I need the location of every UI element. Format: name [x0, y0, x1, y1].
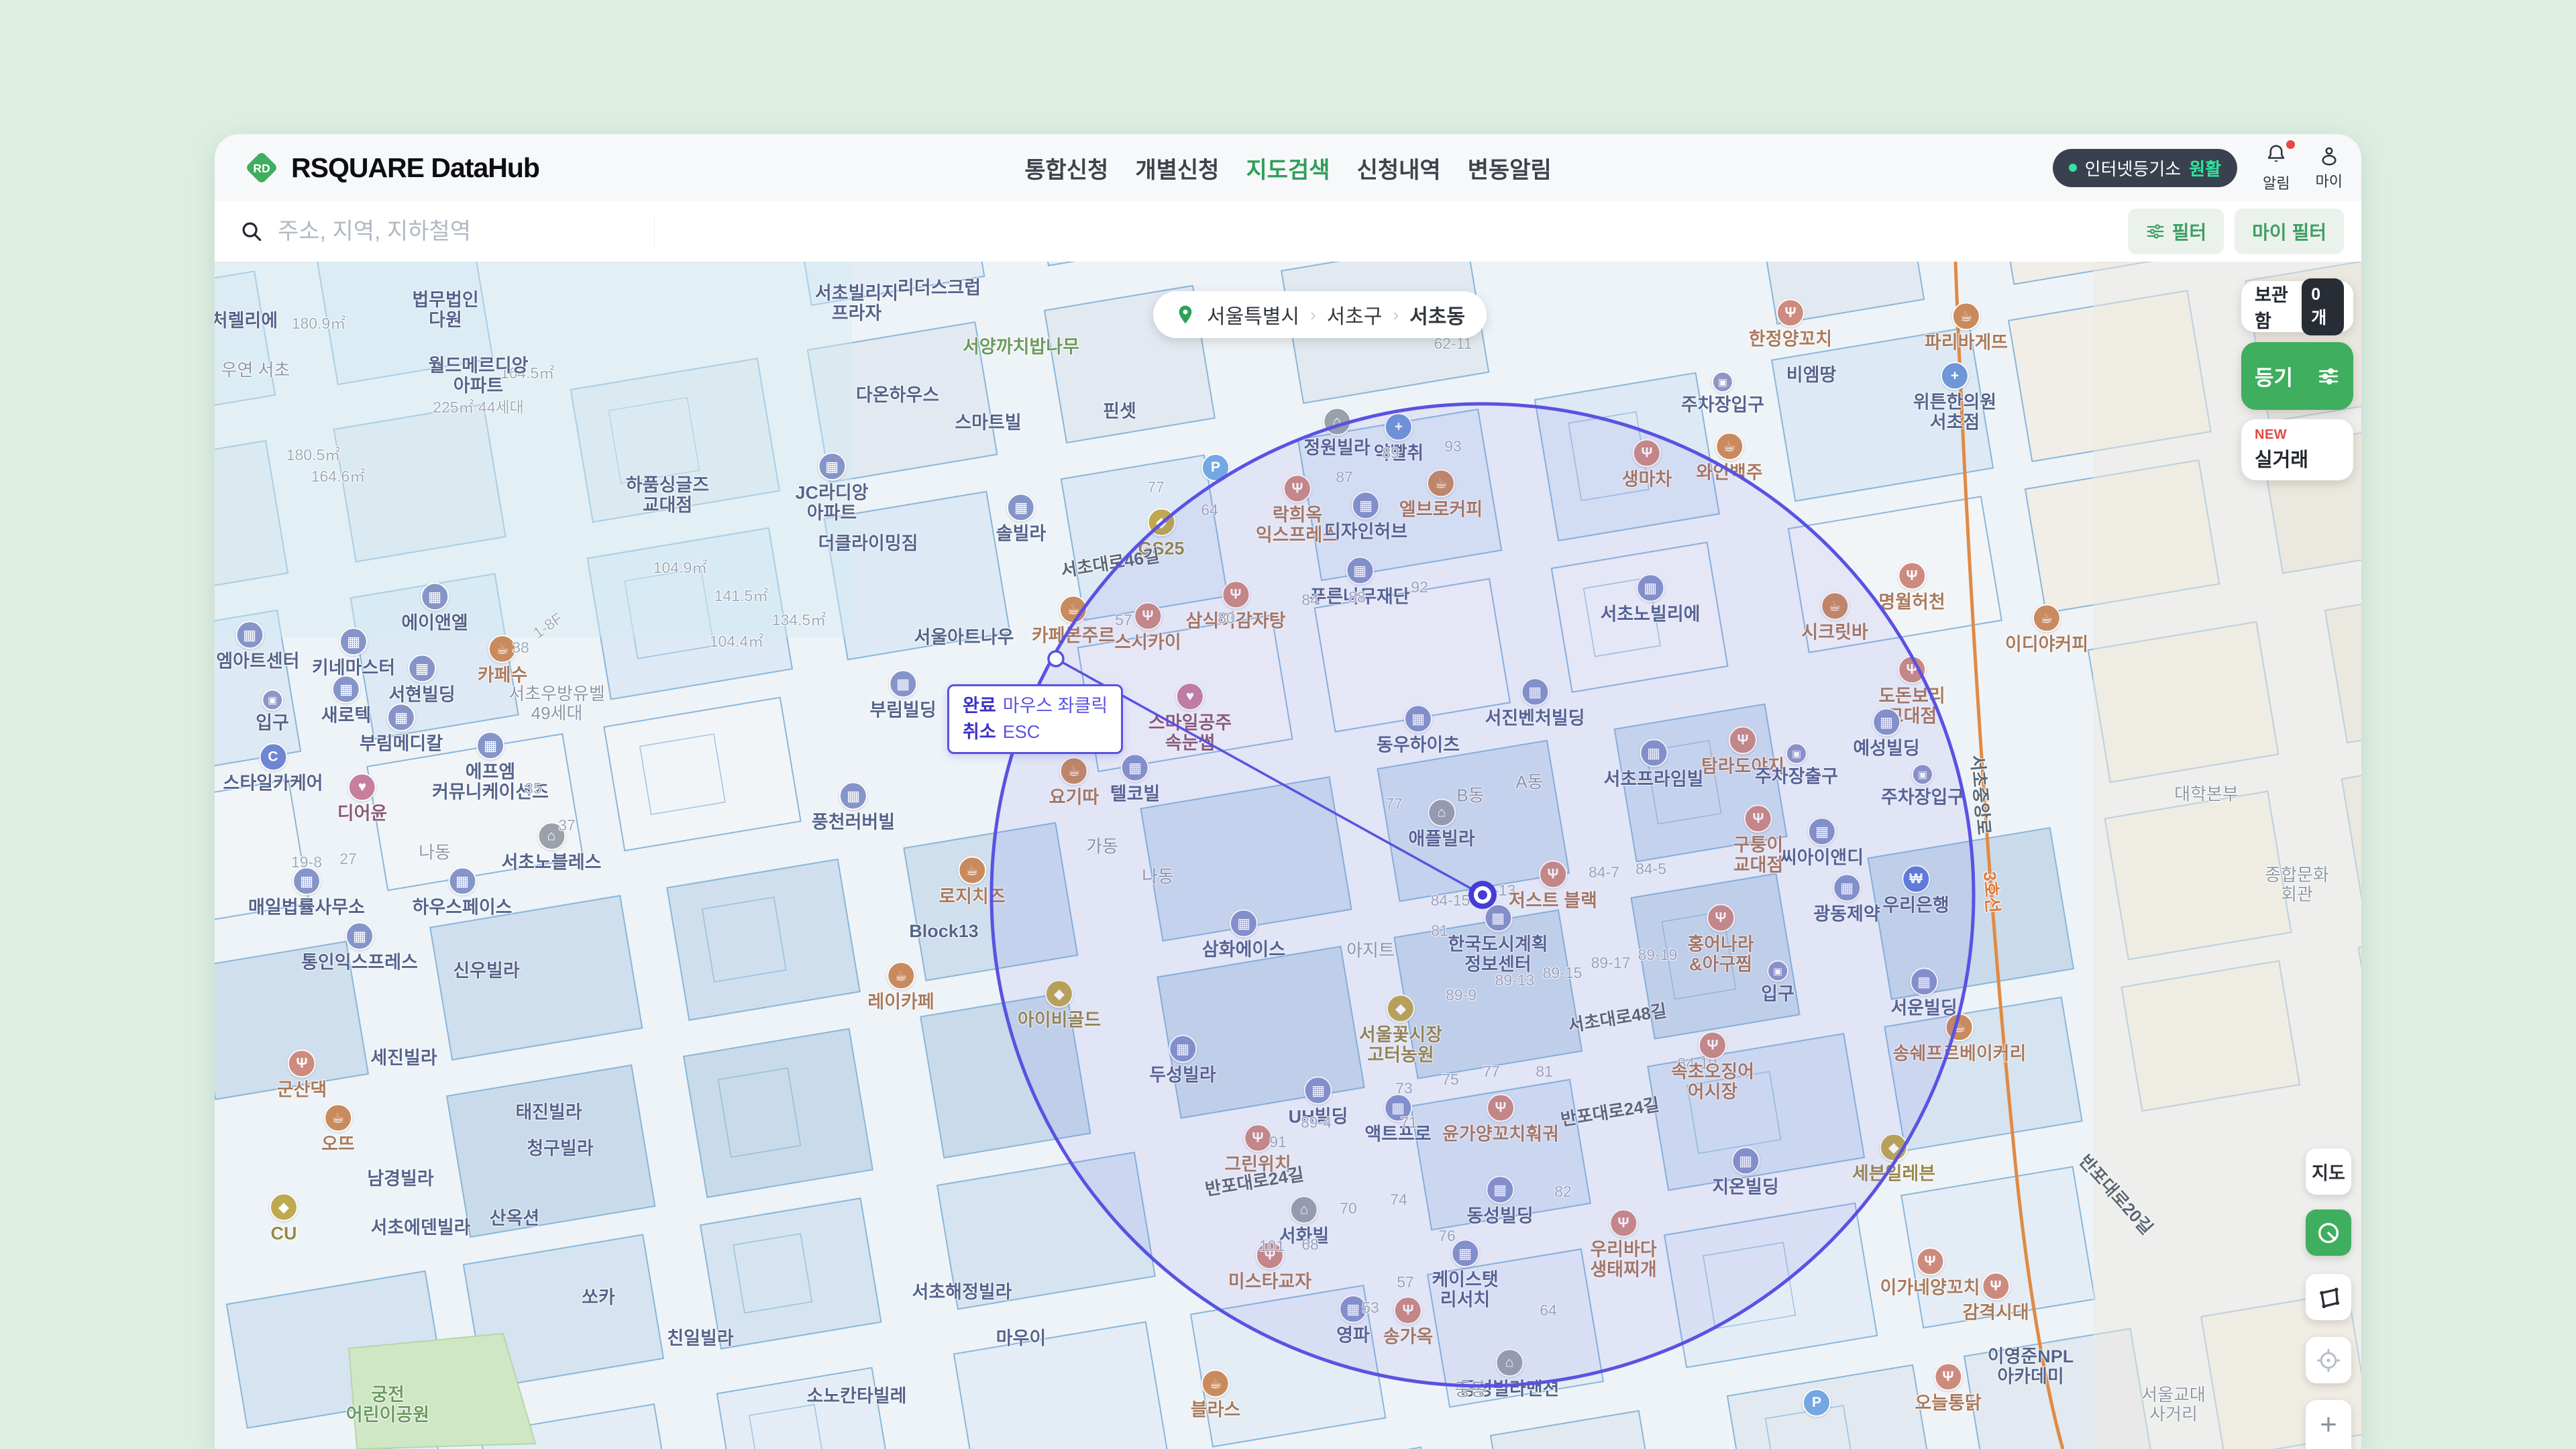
entrance-icon: ▣ [1767, 960, 1788, 981]
map-label: 84-15 [1431, 892, 1470, 910]
map-label-text: 부림메디칼 [360, 733, 443, 753]
map-label-text: 미스타교자 [1228, 1271, 1311, 1291]
map-label: ◆서울꽃시장 고터농원 [1359, 994, 1442, 1065]
map-label: 쏘카 [582, 1287, 615, 1307]
map-label: ◆CU [270, 1193, 298, 1243]
map-label-text: 동성빌딩 [1466, 1205, 1533, 1226]
map-label: 73 [1395, 1080, 1413, 1097]
profile-button[interactable]: 마이 [2316, 144, 2343, 191]
map-label: ▦삼화에이스 [1202, 909, 1285, 959]
map-label-text: 77 [1483, 1063, 1500, 1081]
building-icon: ▦ [1384, 1093, 1412, 1122]
map-label: ₩우리은행 [1882, 865, 1949, 915]
map-label: P [1201, 453, 1230, 482]
radius-circle-icon [2315, 1220, 2342, 1246]
map-label-text: 마우이 [996, 1328, 1046, 1348]
map-label: Ψ생마차 [1622, 439, 1672, 489]
map-label-text: 89-15 [1543, 965, 1582, 982]
map-label-text: 가동 [1086, 837, 1118, 856]
map-label-text: 나동 [1142, 867, 1174, 886]
map-label-text: 서초에덴빌라 [370, 1218, 470, 1238]
map-label-text: 키네마스터 [312, 657, 395, 678]
restaurant-icon: Ψ [1707, 904, 1735, 932]
building-icon: ▦ [1451, 1239, 1479, 1267]
map-label: 57 [1397, 1274, 1414, 1291]
sliders-icon [2317, 365, 2340, 388]
map-label: 88 [1348, 589, 1366, 606]
map-label-text: 서운빌딩 [1890, 998, 1957, 1018]
map-label: ▦UH빌딩 [1289, 1076, 1348, 1126]
house-icon: ⌂ [1323, 407, 1351, 435]
map-label: 다온하우스 [856, 385, 939, 405]
map-label: 청구빌라 [527, 1138, 593, 1159]
building-icon: ▦ [1346, 556, 1374, 584]
tooltip-complete-label: 완료 [963, 696, 996, 716]
parking-icon: P [1201, 453, 1230, 482]
cafe-icon: ☕ [324, 1104, 352, 1132]
map-label: 141.5㎡ [714, 588, 769, 605]
house-icon: ⌂ [1290, 1195, 1318, 1224]
map-label-text: 씨아이앤디 [1780, 847, 1864, 867]
map-label: 89-9 [1446, 987, 1477, 1004]
building-icon: ▦ [408, 654, 436, 682]
map-label: 84-5 [1635, 861, 1666, 878]
map-label: 101 [1259, 1238, 1285, 1255]
map-label-text: 입구 [256, 712, 289, 733]
map-label-text: 로지치즈 [938, 886, 1005, 906]
registry-label: 등기 [2255, 361, 2293, 391]
map-label: ☕카페본주르 [1032, 595, 1115, 645]
map-label-text: 70 [1340, 1200, 1357, 1218]
location-pin-icon [1175, 304, 1196, 325]
restaurant-icon: Ψ [1539, 860, 1567, 888]
polygon-draw-tool-button[interactable] [2306, 1274, 2351, 1320]
beauty-icon: ♥ [1176, 682, 1204, 710]
map-label: ◆세븐일레븐 [1852, 1133, 1935, 1183]
tooltip-cancel-label: 취소 [963, 722, 996, 742]
map-label-text: 180.9㎡ [292, 315, 346, 333]
map-label: 남경빌라 [367, 1169, 433, 1189]
restaurant-icon: Ψ [1916, 1247, 1944, 1275]
map-label-text: 소노칸타빌레 [806, 1386, 906, 1406]
map-label: 서초에덴빌라 [370, 1218, 470, 1238]
map-label: 57 [1115, 612, 1132, 629]
map-label-text: JC라디앙 아파트 [795, 482, 868, 523]
map-label-text: 84-5 [1635, 861, 1666, 878]
map-label-text: 스마트빌 [955, 413, 1021, 433]
map-label-text: 57 [1115, 612, 1132, 629]
map-label: Ψ저스트 블랙 [1509, 860, 1597, 910]
entrance-icon: ▣ [262, 689, 283, 710]
map-label-text: 중동 [1454, 1380, 1487, 1399]
building-icon: ▦ [1833, 873, 1861, 902]
map-label: ▦영파 [1336, 1295, 1370, 1345]
restaurant-icon: Ψ [1898, 561, 1926, 590]
nav-item-개별신청[interactable]: 개별신청 [1134, 145, 1220, 191]
map-label: ▦동성빌딩 [1466, 1175, 1533, 1226]
map-label-text: 더클라이밍짐 [818, 533, 918, 553]
pharmacy-icon: + [1385, 413, 1413, 441]
map-label: ▦서진벤처빌딩 [1485, 678, 1585, 728]
profile-label: 마이 [2316, 170, 2343, 191]
breadcrumb-item[interactable]: 서초구 [1327, 300, 1383, 329]
map-label-text: 탐라도야지 [1701, 756, 1784, 776]
map-label: ▦액트프로 [1364, 1093, 1431, 1144]
map-label: 19-8 [291, 854, 322, 871]
map-label: ▣주차장입구 [1681, 371, 1764, 415]
map-label-text: 81 [1431, 922, 1448, 940]
map-label-text: 주차장입구 [1881, 787, 1964, 807]
map-label: 74 [1390, 1191, 1407, 1209]
map-label: ◆아이비골드 [1018, 979, 1101, 1030]
map-label: 소노칸타빌레 [806, 1386, 906, 1406]
real-price-button[interactable]: NEW 실거래 [2241, 419, 2353, 480]
map-label: 아지트 [1346, 941, 1395, 960]
map-label-text: 액트프로 [1364, 1124, 1431, 1144]
entrance-icon: ▣ [1712, 371, 1733, 392]
map-label: Ψ미스타교자 [1228, 1241, 1311, 1291]
map-label-text: 부림빌딩 [869, 700, 936, 720]
map-label: ♥스마일공주 속눈썹 [1148, 682, 1232, 753]
map-label-text: 도돈보리 교대점 [1878, 686, 1945, 726]
chevron-right-icon: › [1393, 305, 1399, 325]
map-label-text: 속초오징어 어시장 [1671, 1061, 1754, 1102]
map-label-text: 삼화에이스 [1202, 939, 1285, 959]
map-label-text: 아지트 [1346, 941, 1395, 960]
building-icon: ▦ [1352, 491, 1380, 519]
cafe-icon: ☕ [1821, 592, 1849, 620]
map-label-text: 산옥션 [490, 1208, 540, 1228]
map-label: 82 [1554, 1183, 1572, 1201]
building-icon: ▦ [1640, 739, 1668, 767]
map-label-text: 서양까치밥나무 [963, 337, 1079, 357]
map-label-text: 지온빌딩 [1712, 1177, 1778, 1197]
map-label: 스마트빌 [955, 413, 1021, 433]
map-label-text: 164.6㎡ [311, 468, 366, 486]
map-label: 서초대로46길 [1059, 546, 1161, 581]
map-label-text: 파리바게뜨 [1925, 332, 2008, 352]
cafe-icon: ☕ [1952, 302, 1980, 330]
parking-icon: P [1803, 1389, 1831, 1417]
map-label: 리더스크럽 [898, 278, 981, 298]
map-label: 53 [1362, 1299, 1379, 1317]
map-label: 세진빌라 [370, 1048, 437, 1068]
polygon-icon [2315, 1284, 2342, 1311]
map-label: ▦씨아이앤디 [1780, 817, 1864, 867]
breadcrumb-item[interactable]: 서초동 [1409, 300, 1465, 329]
map-label-text: 서초대로48길 [1566, 1001, 1668, 1036]
map-label-text: 3호선 [1980, 871, 2002, 914]
map-label-text: 쏘카 [582, 1287, 615, 1307]
map-label-text: 225㎡ 44세대 [433, 399, 524, 417]
map-label-text: 89-19 [1638, 947, 1678, 964]
map-label-text: 월드메르디앙 아파트 [428, 356, 528, 396]
cafe-icon: ☕ [1201, 1369, 1230, 1397]
status-value: 원활 [2189, 156, 2221, 180]
map-label-text: 종합문화회관 [2265, 865, 2329, 904]
map-label-text: 89 [1382, 445, 1399, 462]
map-label-text: 청구빌라 [527, 1138, 593, 1159]
map-label: 반포대로24길 [1559, 1095, 1660, 1130]
map-label: 77 [1385, 796, 1403, 813]
filter-button[interactable]: 필터 [2128, 209, 2224, 254]
map-label: 89-13 [1495, 972, 1535, 989]
map-label: 104.4㎡ [710, 633, 764, 651]
map-label: 104.9㎡ [653, 559, 708, 577]
map-label-text: 서초우방유벨 49세대 [508, 684, 605, 723]
map-label-text: 요기따 [1049, 787, 1099, 807]
map-label: ▦한국도시계획 정보센터 [1448, 904, 1548, 974]
map-label: 134.5㎡ [772, 612, 826, 629]
map-label: ▦부림빌딩 [869, 669, 936, 720]
map-label-text: 84-7 [1589, 864, 1619, 881]
map-label-text: 한정양꼬치 [1749, 329, 1832, 349]
map-label-text: 84 [1301, 592, 1319, 609]
map-label-text: 반포대로20길 [2075, 1151, 2156, 1238]
map-label-text: 89-4 [1301, 1114, 1332, 1132]
my-filter-button[interactable]: 마이 필터 [2235, 209, 2344, 254]
status-label: 인터넷등기소 [2085, 156, 2182, 180]
nav-item-신청내역[interactable]: 신청내역 [1356, 145, 1442, 191]
restaurant-icon: Ψ [1729, 726, 1757, 754]
map-label: Ψ오늘통닭 [1915, 1362, 1981, 1413]
map-label-text: 이영준NPL 아카데미 [1988, 1346, 2074, 1387]
map-label-text: 동우하이츠 [1377, 735, 1460, 755]
map-label: 궁전 어린이공원 [346, 1385, 429, 1425]
cafe-icon: ☕ [1945, 1013, 1974, 1041]
map-label: 76 [1438, 1228, 1456, 1245]
map-label-text: 우연 서초 [221, 360, 290, 380]
map-label-text: Block13 [909, 921, 979, 941]
map-label: +위튼한의원 서초점 [1913, 362, 1996, 432]
map-label: ☕송쉐프르베이커리 [1893, 1013, 2027, 1063]
map-label-text: 53 [1362, 1299, 1379, 1317]
map-label: 81 [1431, 922, 1448, 940]
draw-tooltip: 완료마우스 좌클릭 취소ESC [947, 684, 1123, 754]
map-label-text: 남경빌라 [367, 1169, 433, 1189]
map-label-text: 궁전 어린이공원 [346, 1385, 429, 1425]
map-label: ▦풍천러버빌 [812, 782, 895, 832]
map-label-text: 84-13 [1477, 882, 1516, 900]
map-label: Ψ락희옥 익스프레스 [1256, 474, 1339, 545]
map-label-text: 나동 [419, 843, 451, 862]
map-label: Ψ감격시대 [1962, 1272, 2029, 1322]
cafe-icon: ☕ [1060, 757, 1088, 785]
registry-button[interactable]: 등기 [2241, 342, 2353, 410]
nav-item-지도검색[interactable]: 지도검색 [1244, 145, 1331, 191]
map-label-text: 풍천러버빌 [812, 812, 895, 832]
map-label: ▦새로텍 [321, 675, 372, 725]
map-label-text: B동 [1456, 786, 1484, 805]
main-nav: 통합신청개별신청지도검색신청내역변동알림 [1023, 145, 1553, 191]
radius-draw-tool-button[interactable] [2306, 1210, 2351, 1256]
map-label-text: 솔빌라 [996, 523, 1046, 543]
map-label: ▦동우하이츠 [1377, 704, 1460, 755]
map-label: 서초우방유벨 49세대 [508, 684, 605, 723]
map-label-text: 서초노빌리에 [1600, 604, 1700, 624]
tooltip-complete-key: 마우스 좌클릭 [1003, 696, 1108, 716]
map-label: 비엠땅 [1786, 365, 1837, 385]
map-label-text: 태진빌라 [515, 1102, 582, 1122]
storage-button[interactable]: 보관함 0개 [2241, 281, 2353, 332]
bell-icon [2264, 143, 2288, 167]
beauty-icon: ♥ [348, 773, 376, 801]
map-label: 나동 [419, 843, 451, 862]
map-label: 서초해정빌라 [912, 1282, 1012, 1302]
map-label-text: 레이카페 [867, 991, 934, 1012]
map-label-text: 75 [1442, 1071, 1459, 1089]
status-dot-icon [2069, 164, 2077, 172]
top-navbar: RD RSQUARE DataHub 통합신청개별신청지도검색신청내역변동알림 … [215, 134, 2361, 202]
map-label-text: 입구 [1761, 983, 1794, 1004]
nav-item-변동알림[interactable]: 변동알림 [1466, 145, 1553, 191]
current-location-button[interactable] [2306, 1337, 2351, 1383]
map-label-text: 주차장출구 [1755, 766, 1838, 786]
map-label: 89 [1382, 445, 1399, 462]
map-label: ▦JC라디앙 아파트 [795, 452, 868, 523]
map-label: ☕레이카페 [867, 961, 934, 1012]
map-label: 75 [1442, 1071, 1459, 1089]
map-label-text: 이디야커피 [2005, 634, 2088, 654]
map-label: 64 [1540, 1302, 1557, 1320]
map-label-text: 134.5㎡ [772, 612, 826, 629]
map-label: ▦서운빌딩 [1890, 967, 1957, 1018]
map-label-text: 84-10 [1678, 1055, 1717, 1073]
map-label: 89-19 [1638, 947, 1678, 964]
map-label-text: 이가네양꼬치 [1880, 1277, 1980, 1297]
map-canvas[interactable]: 컬처렐리에법무법인 다원우연 서초180.9㎡164.5㎡180.5㎡164.6… [215, 262, 2361, 1449]
map-label: 하품싱글즈 교대점 [626, 475, 709, 515]
map-label: ▦매일법률사무소 [248, 867, 365, 917]
map-label-text: 서초프라임빌 [1603, 769, 1703, 789]
map-label-text: 두성빌라 [1149, 1065, 1216, 1085]
map-label-text: 141.5㎡ [714, 588, 769, 605]
map-label: 서초빌리지 프라자 [815, 283, 898, 323]
map-label-text: 송가옥 [1383, 1326, 1434, 1346]
map-label: 84-13 [1477, 882, 1516, 900]
map-label-text: 37 [558, 817, 576, 835]
shop-icon: ◆ [1045, 979, 1073, 1008]
map-label-text: 에이앤엘 [401, 612, 468, 633]
map-label: 89-17 [1591, 955, 1631, 972]
map-label-text: 스시카이 [1114, 632, 1181, 652]
map-label: 92 [1411, 579, 1428, 596]
map-label-text: 영파 [1336, 1325, 1370, 1345]
building-icon: ▦ [421, 582, 449, 610]
map-label-text: 신우빌라 [453, 961, 519, 981]
map-label-text: 세븐일레븐 [1852, 1163, 1935, 1183]
map-label-text: 서울교대 사거리 [2141, 1385, 2206, 1424]
map-label: 신우빌라 [453, 961, 519, 981]
search-input[interactable] [276, 218, 641, 246]
notification-dot [2286, 140, 2295, 149]
map-label: ☕파리바게뜨 [1925, 302, 2008, 352]
map-label: P [1803, 1389, 1831, 1417]
map-label-text: 서울아트나우 [914, 627, 1014, 647]
map-label: ☕이디야커피 [2005, 604, 2088, 654]
restaurant-icon: Ψ [1982, 1272, 2010, 1300]
map-label: 핀셋 [1103, 401, 1136, 421]
map-label: ♥디어윤 [337, 773, 388, 823]
map-label: ☕카페수 [478, 635, 528, 685]
svg-text:RD: RD [253, 162, 270, 175]
map-label: ▦디엠아트센터 [215, 621, 300, 671]
map-label-text: 카페본주르 [1032, 625, 1115, 645]
map-side-panel: 보관함 0개 등기 NEW 실거래 [2241, 281, 2353, 480]
map-label: +약빨취 [1374, 413, 1424, 463]
map-labels-layer: 컬처렐리에법무법인 다원우연 서초180.9㎡164.5㎡180.5㎡164.6… [215, 262, 2361, 1449]
map-label-text: 스마일공주 속눈썹 [1148, 712, 1232, 753]
map-label: 컬처렐리에 [215, 311, 278, 331]
building-icon: ▦ [1007, 493, 1035, 521]
map-label-text: 구퉁이 교대점 [1733, 835, 1784, 875]
map-label: C스타일카케어 [223, 743, 323, 793]
map-label: ⌂서초노블레스 [501, 822, 601, 872]
map-label: 산옥션 [490, 1208, 540, 1228]
building-icon: ▦ [1304, 1076, 1332, 1104]
map-label: 84-10 [1678, 1055, 1717, 1073]
logo[interactable]: RD RSQUARE DataHub [243, 149, 539, 186]
map-label-text: 약빨취 [1374, 443, 1424, 463]
map-label: 월드메르디앙 아파트 [428, 356, 528, 396]
cafe-icon: ☕ [1427, 469, 1455, 497]
map-label: 종합문화회관 [2265, 865, 2329, 904]
cafe-icon: ☕ [488, 635, 517, 663]
map-label-text: 오늘통닭 [1915, 1393, 1981, 1413]
map-label-text: 주차장입구 [1681, 394, 1764, 415]
map-label-text: 서초노블레스 [501, 852, 601, 872]
restaurant-icon: Ψ [1283, 474, 1311, 502]
building-icon: ▦ [332, 675, 360, 703]
map-type-button[interactable]: 지도 [2306, 1148, 2351, 1195]
entrance-icon: ▣ [1786, 743, 1807, 764]
map-label-text: 101 [1259, 1238, 1285, 1255]
pharmacy-icon: + [1941, 362, 1969, 390]
nav-item-통합신청[interactable]: 통합신청 [1023, 145, 1110, 191]
map-label-text: 89-9 [1446, 987, 1477, 1004]
building-icon: ▦ [889, 669, 917, 698]
map-label: ▦키네마스터 [312, 627, 395, 678]
breadcrumb: 서울특별시›서초구›서초동 [1153, 291, 1487, 338]
building-icon: ▦ [1230, 909, 1258, 937]
map-label: B동 [1456, 786, 1484, 805]
zoom-in-button[interactable]: + [2306, 1400, 2351, 1449]
map-label: Ψ군산댁 [277, 1049, 327, 1099]
cafe-icon: ☕ [1059, 595, 1087, 623]
cafe-icon: ☕ [2033, 604, 2061, 632]
restaurant-icon: Ψ [1487, 1093, 1515, 1122]
map-label: ▦에프엠 커뮤니케이션즈 [432, 731, 549, 802]
map-label-text: 104.4㎡ [710, 633, 764, 651]
map-label: 164.5㎡ [500, 365, 555, 382]
map-label: ☕오뜨 [321, 1104, 355, 1154]
map-label-text: 87 [1336, 469, 1353, 486]
map-label-text: 애플빌라 [1408, 828, 1474, 849]
map-label: 38 [512, 639, 529, 657]
building-icon: ▦ [339, 627, 368, 655]
real-price-label: 실거래 [2255, 444, 2340, 472]
house-icon: ⌂ [537, 822, 566, 850]
map-label-text: 80 [1218, 610, 1235, 627]
map-label: 93 [1444, 438, 1462, 455]
map-label-text: 68 [1301, 1236, 1319, 1254]
map-label-text: 서초대로46길 [1059, 546, 1161, 581]
notifications-button[interactable]: 알림 [2263, 143, 2290, 193]
map-label: ☕요기따 [1049, 757, 1099, 807]
breadcrumb-item[interactable]: 서울특별시 [1207, 300, 1299, 329]
restaurant-icon: Ψ [1898, 655, 1926, 684]
shop-icon: ◆ [1387, 994, 1415, 1022]
